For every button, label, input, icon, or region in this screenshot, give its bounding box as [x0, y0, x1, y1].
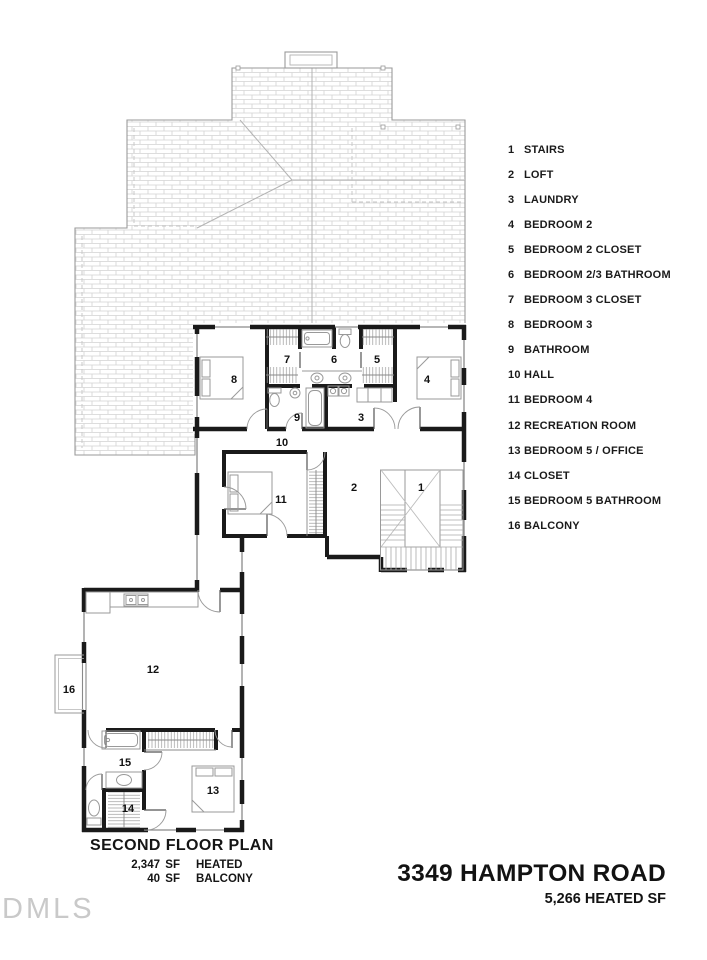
plan-title: SECOND FLOOR PLAN [90, 837, 274, 855]
room-label-bedroom4: 11 [275, 494, 287, 506]
legend-item-label: BEDROOM 3 [524, 319, 592, 331]
legend-item: 6BEDROOM 2/3 BATHROOM [508, 262, 671, 287]
legend-item-number: 7 [508, 294, 524, 306]
legend-item-number: 13 [508, 445, 524, 457]
area-unit: SF [160, 858, 180, 872]
legend-item-number: 10 [508, 369, 524, 381]
room-label-b3-closet: 7 [284, 354, 290, 366]
area-value: 2,347 [116, 858, 160, 872]
legend-item-label: BEDROOM 2 [524, 219, 592, 231]
legend-item-label: HALL [524, 369, 554, 381]
legend-item: 5BEDROOM 2 CLOSET [508, 237, 671, 262]
legend-item-number: 11 [508, 394, 524, 406]
legend-item-label: STAIRS [524, 144, 565, 156]
mls-watermark: DMLS [2, 893, 95, 926]
room-label-bathroom: 9 [294, 412, 300, 424]
legend-item: 7BEDROOM 3 CLOSET [508, 288, 671, 313]
legend-item: 8BEDROOM 3 [508, 313, 671, 338]
address-block: 3349 HAMPTON ROAD 5,266 HEATED SF [397, 860, 666, 907]
room-label-loft: 2 [351, 482, 357, 494]
legend-item-label: BEDROOM 3 CLOSET [524, 294, 642, 306]
legend-item: 11BEDROOM 4 [508, 388, 671, 413]
room-label-laundry: 3 [358, 412, 364, 424]
legend-item-number: 12 [508, 420, 524, 432]
cabinet-icon [86, 592, 110, 613]
legend-item-number: 14 [508, 470, 524, 482]
total-heated-sf: 5,266 HEATED SF [397, 891, 666, 907]
legend-item: 2LOFT [508, 162, 671, 187]
legend-item-label: BEDROOM 2 CLOSET [524, 244, 642, 256]
legend-item-label: BEDROOM 5 / OFFICE [524, 445, 644, 457]
legend-item: 15BEDROOM 5 BATHROOM [508, 488, 671, 513]
room-label-bedroom3: 8 [231, 374, 237, 386]
room-label-bedroom5: 13 [207, 785, 219, 797]
room-label-b23-bath: 6 [331, 354, 337, 366]
room-label-balcony: 16 [63, 684, 75, 696]
legend-item: 12RECREATION ROOM [508, 413, 671, 438]
legend-item-label: BALCONY [524, 520, 580, 532]
legend-item-number: 8 [508, 319, 524, 331]
area-table: 2,347 SF HEATED 40 SF BALCONY [116, 858, 274, 886]
area-value: 40 [116, 872, 160, 886]
title-block: SECOND FLOOR PLAN 2,347 SF HEATED 40 SF … [90, 837, 274, 886]
legend: 1STAIRS 2LOFT 3LAUNDRY 4BEDROOM 2 5BEDRO… [508, 137, 671, 539]
legend-item-label: BEDROOM 4 [524, 394, 592, 406]
legend-item: 10HALL [508, 363, 671, 388]
area-unit: SF [160, 872, 180, 886]
legend-item-number: 1 [508, 144, 524, 156]
property-address: 3349 HAMPTON ROAD [397, 860, 666, 888]
legend-item-number: 3 [508, 194, 524, 206]
area-label: BALCONY [196, 872, 253, 886]
legend-item-label: BATHROOM [524, 344, 590, 356]
legend-item-label: BEDROOM 2/3 BATHROOM [524, 269, 671, 281]
room-label-hall: 10 [276, 437, 288, 449]
room-label-recroom: 12 [147, 664, 159, 676]
room-label-bedroom2: 4 [424, 374, 431, 386]
legend-item-number: 6 [508, 269, 524, 281]
legend-item: 1STAIRS [508, 137, 671, 162]
room-label-stairs: 1 [418, 482, 424, 494]
legend-item-number: 5 [508, 244, 524, 256]
legend-item-number: 15 [508, 495, 524, 507]
room-label-closet: 14 [122, 803, 135, 815]
legend-item: 13BEDROOM 5 / OFFICE [508, 438, 671, 463]
area-row-heated: 2,347 SF HEATED [116, 858, 274, 872]
room-label-b2-closet: 5 [374, 354, 380, 366]
legend-item: 16BALCONY [508, 513, 671, 538]
legend-item: 4BEDROOM 2 [508, 212, 671, 237]
toilet-icon [87, 818, 101, 825]
legend-item-label: CLOSET [524, 470, 570, 482]
legend-item: 3LAUNDRY [508, 187, 671, 212]
legend-item-number: 16 [508, 520, 524, 532]
chimney-icon [285, 52, 337, 68]
balcony-slider-icon [83, 663, 87, 710]
legend-item: 14CLOSET [508, 463, 671, 488]
area-row-balcony: 40 SF BALCONY [116, 872, 274, 886]
room-label-b5-bath: 15 [119, 757, 131, 769]
legend-item-number: 9 [508, 344, 524, 356]
legend-item-number: 2 [508, 169, 524, 181]
legend-item-number: 4 [508, 219, 524, 231]
legend-item-label: RECREATION ROOM [524, 420, 636, 432]
floor-plan-page: 1 2 3 4 5 6 7 8 9 10 11 12 13 14 15 16 1… [0, 0, 707, 960]
legend-item: 9BATHROOM [508, 338, 671, 363]
legend-item-label: LAUNDRY [524, 194, 579, 206]
sink-icon [117, 775, 132, 786]
legend-item-label: LOFT [524, 169, 554, 181]
door-arcs [86, 407, 420, 830]
legend-item-label: BEDROOM 5 BATHROOM [524, 495, 661, 507]
kitchen-counter [86, 592, 198, 613]
area-label: HEATED [196, 858, 242, 872]
